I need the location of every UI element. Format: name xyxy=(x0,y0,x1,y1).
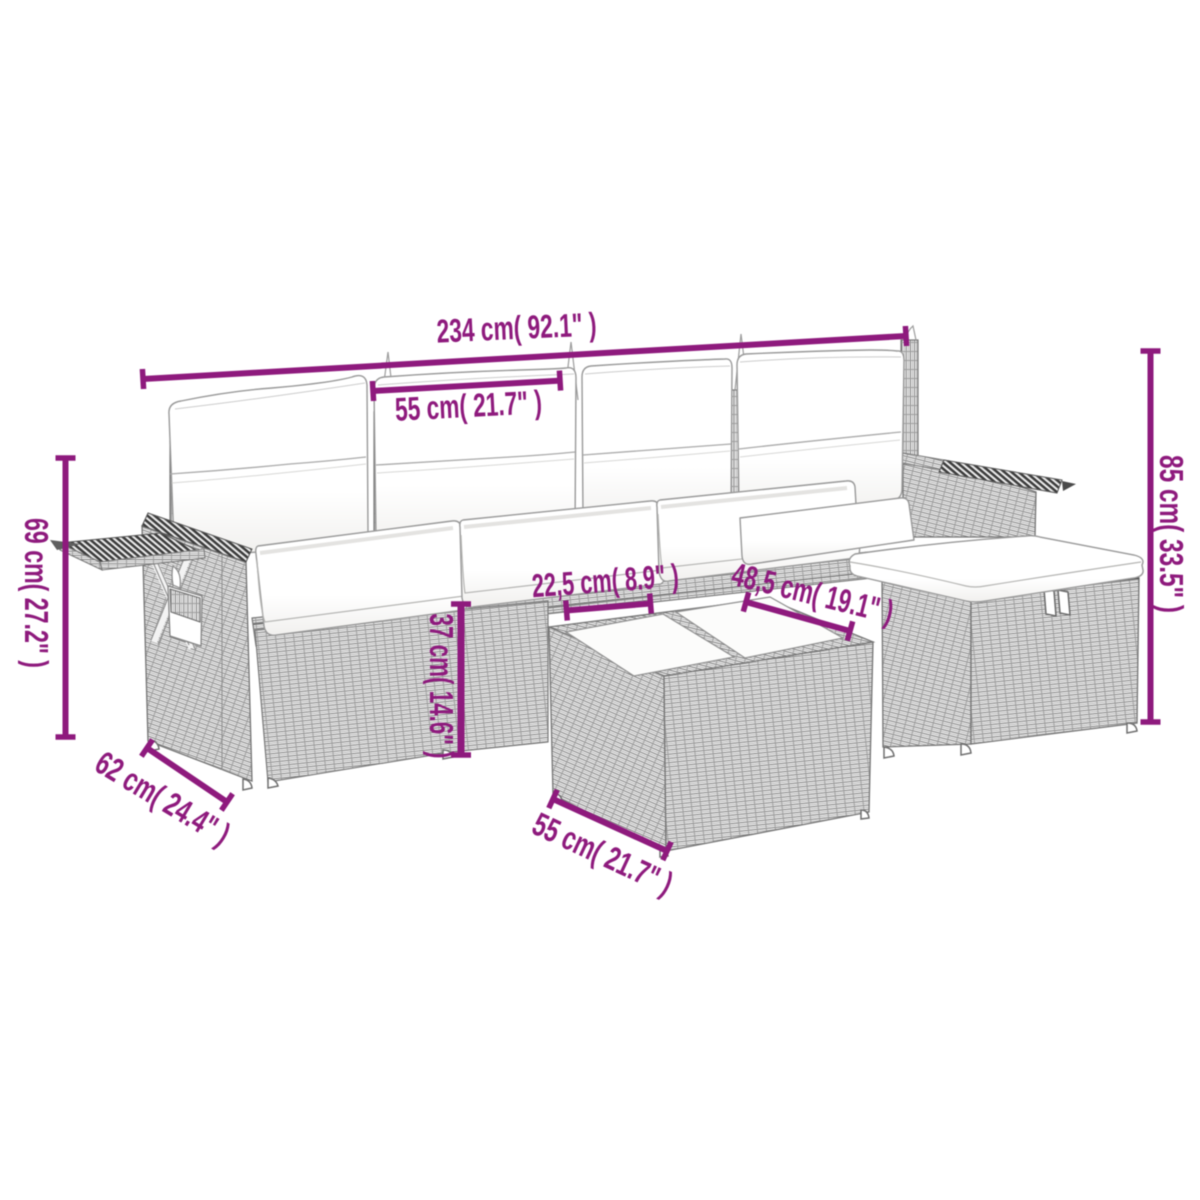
svg-text:234 cm( 92.1" ): 234 cm( 92.1" ) xyxy=(436,305,598,349)
svg-text:37 cm( 14.6" ): 37 cm( 14.6" ) xyxy=(423,614,460,759)
svg-text:55 cm( 21.7" ): 55 cm( 21.7" ) xyxy=(394,383,543,428)
svg-text:85 cm( 33.5" ): 85 cm( 33.5" ) xyxy=(1153,455,1190,613)
svg-text:69 cm( 27.2" ): 69 cm( 27.2" ) xyxy=(18,518,55,668)
